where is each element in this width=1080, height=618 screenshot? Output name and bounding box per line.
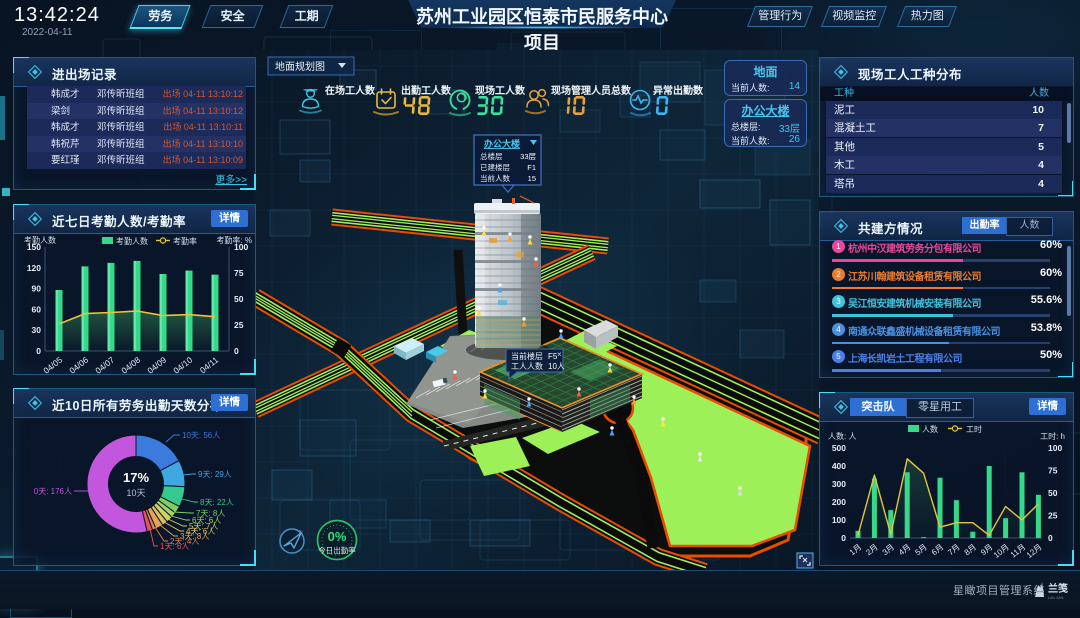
svg-text:30: 30 [32, 325, 42, 335]
svg-text:2月: 2月 [864, 542, 879, 557]
svg-text:×: × [557, 350, 562, 359]
svg-text:工时: 工时 [966, 424, 982, 434]
svg-text:5月: 5月 [913, 542, 928, 557]
svg-text:04/11: 04/11 [198, 355, 221, 374]
svg-text:33层: 33层 [520, 152, 536, 161]
svg-text:100: 100 [234, 242, 248, 252]
svg-text:04/05: 04/05 [41, 355, 64, 374]
svg-text:总楼层: 总楼层 [480, 151, 503, 161]
svg-text:LAN JIAN: LAN JIAN [1048, 596, 1064, 600]
svg-text:8月: 8月 [963, 542, 978, 557]
svg-text:10月: 10月 [992, 542, 1011, 560]
svg-text:100: 100 [832, 515, 846, 525]
svg-text:0%: 0% [328, 529, 347, 544]
svg-text:工时: h: 工时: h [1040, 431, 1065, 441]
svg-text:400: 400 [832, 461, 846, 471]
svg-text:04/06: 04/06 [67, 355, 90, 374]
svg-text:10人: 10人 [548, 362, 565, 371]
svg-text:0: 0 [36, 346, 41, 356]
svg-text:兰笺: 兰笺 [1048, 582, 1068, 595]
svg-text:9月: 9月 [979, 542, 994, 557]
svg-text:25: 25 [1048, 511, 1058, 521]
svg-text:500: 500 [832, 443, 846, 453]
svg-text:11月: 11月 [1009, 542, 1027, 559]
svg-text:300: 300 [832, 479, 846, 489]
svg-text:10天: 10天 [126, 488, 145, 498]
svg-text:人数: 人数 [922, 424, 938, 434]
svg-text:0: 0 [1048, 533, 1053, 543]
svg-text:N: N [299, 530, 303, 536]
svg-text:考勤人数: 考勤人数 [116, 236, 148, 246]
svg-text:人数: 人: 人数: 人 [828, 431, 856, 441]
svg-text:200: 200 [832, 497, 846, 507]
svg-text:0天: 176人: 0天: 176人 [34, 487, 72, 496]
svg-text:120: 120 [27, 263, 41, 273]
svg-text:1月: 1月 [848, 542, 863, 557]
svg-text:工人人数: 工人人数 [511, 361, 543, 371]
svg-text:今日出勤率: 今日出勤率 [318, 545, 356, 555]
svg-text:15: 15 [528, 174, 536, 183]
svg-text:现场管理人员总数: 现场管理人员总数 [551, 84, 632, 97]
svg-text:3月: 3月 [881, 542, 896, 557]
svg-text:6月: 6月 [930, 542, 945, 557]
svg-text:1天: 6人: 1天: 6人 [160, 542, 189, 551]
svg-text:90: 90 [32, 284, 42, 294]
svg-text:75: 75 [234, 268, 244, 278]
svg-text:12月: 12月 [1025, 542, 1044, 560]
svg-text:地面规划图: 地面规划图 [275, 60, 325, 73]
svg-text:8天: 22人: 8天: 22人 [200, 498, 234, 507]
svg-text:10天: 56人: 10天: 56人 [182, 431, 220, 440]
svg-text:60: 60 [32, 304, 42, 314]
svg-text:150: 150 [27, 242, 41, 252]
svg-text:出勤工人数: 出勤工人数 [401, 84, 452, 97]
svg-text:04/08: 04/08 [119, 355, 142, 374]
svg-text:F1: F1 [527, 163, 536, 172]
svg-text:当前楼层: 当前楼层 [511, 351, 543, 361]
svg-text:04/09: 04/09 [145, 355, 168, 374]
svg-text:当前人数: 当前人数 [480, 173, 510, 183]
svg-text:9天: 29人: 9天: 29人 [198, 470, 232, 479]
svg-text:25: 25 [234, 320, 244, 330]
svg-text:考勤率: 考勤率 [173, 236, 197, 246]
svg-text:在场工人数: 在场工人数 [325, 84, 376, 97]
svg-text:17%: 17% [123, 470, 149, 485]
svg-text:7月: 7月 [946, 542, 961, 557]
svg-text:04/10: 04/10 [171, 355, 194, 374]
svg-text:4月: 4月 [897, 542, 912, 557]
svg-text:异常出勤数: 异常出勤数 [653, 84, 704, 97]
svg-text:50: 50 [1048, 488, 1058, 498]
svg-text:75: 75 [1048, 466, 1058, 476]
svg-text:100: 100 [1048, 443, 1062, 453]
svg-text:04/07: 04/07 [93, 355, 116, 374]
svg-text:现场工人数: 现场工人数 [475, 84, 526, 97]
svg-text:已建楼层: 已建楼层 [480, 162, 510, 172]
svg-text:0: 0 [841, 533, 846, 543]
svg-text:50: 50 [234, 294, 244, 304]
svg-text:0: 0 [234, 346, 239, 356]
